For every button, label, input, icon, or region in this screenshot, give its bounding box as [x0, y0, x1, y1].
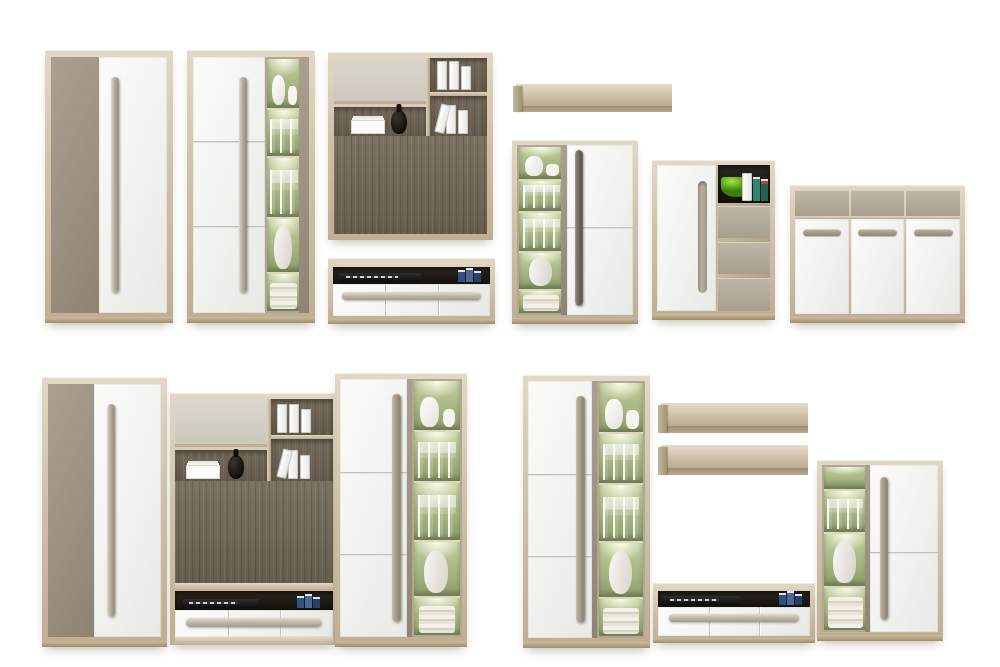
shelf-front-edge — [661, 455, 808, 468]
door-handle — [239, 77, 247, 292]
wardrobe-top-left — [45, 50, 173, 323]
tv-back-panel — [175, 481, 333, 583]
drawer-seam — [385, 284, 386, 316]
wine-glasses — [523, 185, 560, 207]
drawer-front — [175, 610, 333, 637]
book — [761, 179, 768, 201]
binder — [277, 404, 287, 433]
drawer — [718, 206, 770, 238]
book — [297, 596, 304, 608]
shelf-column — [430, 58, 487, 136]
white-jug — [420, 397, 438, 428]
drawer-front — [333, 284, 490, 316]
binders — [276, 450, 310, 479]
cabinet-front — [193, 57, 309, 313]
open-shelf — [334, 107, 426, 136]
cabinet-front — [822, 465, 938, 632]
wine-glasses — [418, 442, 457, 478]
blue-books — [458, 268, 481, 282]
drawer-handle — [186, 618, 322, 627]
shelf-top-face — [516, 84, 672, 93]
wine-glasses — [270, 119, 298, 153]
drawer-seam — [438, 284, 439, 316]
vitrine-shelf — [519, 253, 563, 291]
cabinet-front — [340, 379, 462, 637]
shelf-end-cap — [658, 405, 667, 433]
book — [753, 177, 760, 201]
dvd-player — [183, 599, 259, 608]
display-cabinet-top — [187, 50, 315, 323]
sideboard-door — [906, 219, 960, 314]
binders — [437, 61, 471, 90]
white-vase — [274, 226, 291, 269]
book — [474, 271, 481, 282]
blue-books — [297, 594, 320, 608]
open-shelf — [175, 450, 267, 481]
furniture-collage — [0, 0, 1000, 667]
bench-top — [175, 583, 333, 591]
drawer-handle — [669, 614, 800, 622]
tv-stand-top — [328, 258, 495, 324]
flap-column — [175, 399, 267, 481]
vitrine-shelf — [519, 147, 563, 181]
shelf-end-cap — [513, 86, 522, 112]
shelf-column — [271, 399, 333, 481]
bench-base — [653, 638, 815, 643]
folded-textiles — [419, 606, 456, 633]
media-compartment — [175, 591, 333, 610]
stand-base — [328, 319, 495, 324]
wardrobe-left-door — [51, 57, 99, 313]
glass-vitrine — [265, 57, 303, 313]
flap-column — [334, 58, 426, 136]
door-panel-seam — [193, 141, 265, 143]
unit-front — [334, 58, 487, 234]
vitrine-shelf — [519, 213, 563, 253]
cabinet-base — [523, 642, 650, 648]
white-jug — [525, 156, 543, 176]
wine-glasses — [603, 444, 640, 480]
vitrine-shelf — [599, 383, 643, 434]
card-stack — [351, 120, 385, 134]
vitrine-shelf — [599, 543, 643, 599]
shelf-end-cap — [658, 447, 667, 475]
vitrine-cabinet-top-right — [512, 140, 638, 324]
cabinet-door — [657, 165, 716, 311]
book — [779, 593, 786, 605]
white-jug — [605, 399, 623, 429]
flap-door — [175, 399, 267, 447]
book — [742, 173, 752, 201]
vitrine-shelf — [519, 181, 563, 213]
drawer-column — [718, 165, 770, 311]
wall-unit-bottom-left — [170, 393, 338, 645]
binder — [301, 409, 311, 433]
binder — [289, 404, 299, 433]
wall-unit-top — [328, 52, 493, 240]
cabinet-base — [817, 635, 943, 641]
door-handle — [880, 477, 888, 621]
wardrobe-bottom-left — [42, 377, 167, 647]
sideboard-top-right — [790, 185, 965, 323]
binder — [300, 455, 310, 479]
stand-front — [333, 267, 490, 316]
door-handle — [575, 150, 583, 306]
shelf-compartment — [430, 58, 487, 92]
media-compartment — [333, 267, 490, 284]
cabinet-front — [51, 57, 167, 313]
tv-bench-bottom-right — [653, 583, 815, 643]
vitrine-shelf — [267, 59, 301, 110]
vitrine-shelf — [267, 158, 301, 219]
white-cup — [443, 409, 456, 428]
vitrine-shelf — [414, 542, 460, 598]
upper-section — [175, 399, 333, 481]
unit-front — [175, 399, 333, 645]
binders — [434, 105, 468, 134]
sideboard-front — [795, 190, 960, 314]
binder — [458, 110, 468, 134]
book — [466, 268, 473, 282]
sideboard-door — [851, 219, 905, 314]
door-handle — [576, 396, 585, 622]
white-jug — [272, 75, 285, 105]
glass-vitrine — [597, 381, 645, 638]
vitrine-shelf — [599, 599, 643, 636]
vitrine-shelf — [414, 381, 460, 432]
wall-shelf-bottom-right-1 — [658, 403, 808, 433]
door-handle — [698, 181, 707, 293]
shelf-compartment — [271, 439, 333, 481]
wall-shelf-top — [513, 84, 672, 112]
vitrine-shelf — [267, 274, 301, 311]
card-stack — [186, 465, 220, 479]
media-compartment — [658, 591, 810, 607]
binder — [461, 66, 471, 90]
shelf-underside — [661, 426, 808, 433]
black-vase — [391, 110, 407, 134]
bench-base — [175, 637, 333, 645]
bench-front — [658, 591, 810, 636]
champagne-flutes — [270, 170, 298, 213]
door-handle — [858, 229, 897, 236]
cabinet-front — [48, 384, 161, 637]
drawer — [851, 190, 905, 216]
dvd-player — [664, 596, 740, 605]
vitrine-shelf — [599, 434, 643, 485]
cabinet-base — [187, 317, 315, 323]
white-cup — [546, 164, 558, 176]
book — [313, 597, 320, 608]
drawer — [718, 278, 770, 311]
vitrine-shelf — [824, 588, 867, 630]
glass-vitrine — [822, 465, 869, 632]
vitrine-shelf — [599, 485, 643, 543]
door-row — [795, 219, 960, 314]
wardrobe-right-door — [94, 384, 161, 637]
black-vase — [228, 455, 244, 479]
champagne-flutes — [523, 219, 560, 247]
folded-textiles — [828, 597, 862, 628]
shelf-top-face — [661, 445, 808, 455]
cabinet-front — [517, 145, 633, 315]
cabinet-base — [42, 641, 167, 647]
white-cup — [626, 410, 638, 429]
binders — [277, 404, 311, 433]
shelf-front-edge — [661, 413, 808, 426]
shelf-underside — [661, 468, 808, 475]
folded-textiles — [603, 608, 638, 634]
vitrine-shelf — [267, 110, 301, 158]
cabinet-front — [528, 381, 645, 638]
tall-vitrine-bottom-left — [335, 373, 467, 647]
door-handle — [392, 394, 401, 621]
book — [795, 594, 802, 605]
glass-vitrine — [517, 145, 565, 315]
vitrine-shelf — [267, 219, 301, 275]
shelf-front-edge — [516, 93, 672, 106]
drawer-handle — [342, 292, 480, 300]
dvd-player — [339, 273, 421, 282]
vitrine-shelf — [824, 534, 867, 588]
cabinet-front — [657, 165, 770, 311]
shelf-underside — [516, 106, 672, 112]
white-vase — [833, 541, 855, 582]
folded-textiles — [523, 295, 558, 311]
folded-textiles — [270, 283, 297, 309]
book — [458, 270, 465, 282]
drawer-cabinet-top-right — [652, 160, 775, 320]
wardrobe-right-door — [99, 57, 167, 313]
upper-section — [334, 58, 487, 136]
white-vase — [609, 551, 632, 594]
door-handle — [107, 404, 115, 617]
white-vase — [529, 257, 552, 286]
wall-shelf-bottom-right-2 — [658, 445, 808, 475]
door-handle — [111, 77, 119, 292]
cabinet-door — [193, 57, 265, 313]
binder — [437, 61, 447, 90]
top-drawer-row — [795, 190, 960, 216]
white-cup — [288, 86, 297, 105]
vitrine-shelf — [414, 598, 460, 635]
book — [787, 591, 794, 605]
vitrine-shelf — [824, 491, 867, 534]
sideboard-base — [790, 317, 965, 323]
champagne-flutes — [603, 497, 640, 539]
cabinet-base — [335, 641, 467, 647]
vitrine-shelf — [414, 432, 460, 483]
blue-books — [779, 591, 802, 605]
vitrine-shelf — [824, 467, 867, 491]
vitrine-shelf — [519, 291, 563, 313]
side-panel — [299, 57, 309, 313]
champagne-flutes — [827, 499, 863, 529]
open-compartment — [718, 165, 770, 203]
door-panel-seam — [193, 226, 265, 228]
vitrine-shelf — [414, 483, 460, 542]
drawer-front — [658, 607, 810, 636]
book — [305, 594, 312, 608]
champagne-flutes — [418, 495, 457, 537]
drawer — [906, 190, 960, 216]
vitrine-cabinet-bottom-right — [817, 460, 943, 641]
glass-vitrine — [412, 379, 462, 637]
tv-back-panel — [334, 136, 487, 234]
tall-vitrine-bottom-right — [523, 375, 650, 648]
cabinet-base — [45, 317, 173, 323]
binder — [449, 61, 459, 90]
flap-door — [334, 58, 426, 104]
shelf-top-face — [661, 403, 808, 413]
teal-books — [742, 173, 768, 201]
shelf-compartment — [430, 96, 487, 136]
drawer — [795, 190, 849, 216]
sideboard-door — [795, 219, 849, 314]
white-vase — [424, 550, 448, 593]
wardrobe-left-door — [48, 384, 94, 637]
door-handle — [914, 229, 953, 236]
door-handle — [803, 229, 842, 236]
cabinet-base — [512, 318, 638, 324]
shelf-compartment — [271, 399, 333, 435]
drawer — [718, 242, 770, 274]
cabinet-base — [652, 314, 775, 320]
